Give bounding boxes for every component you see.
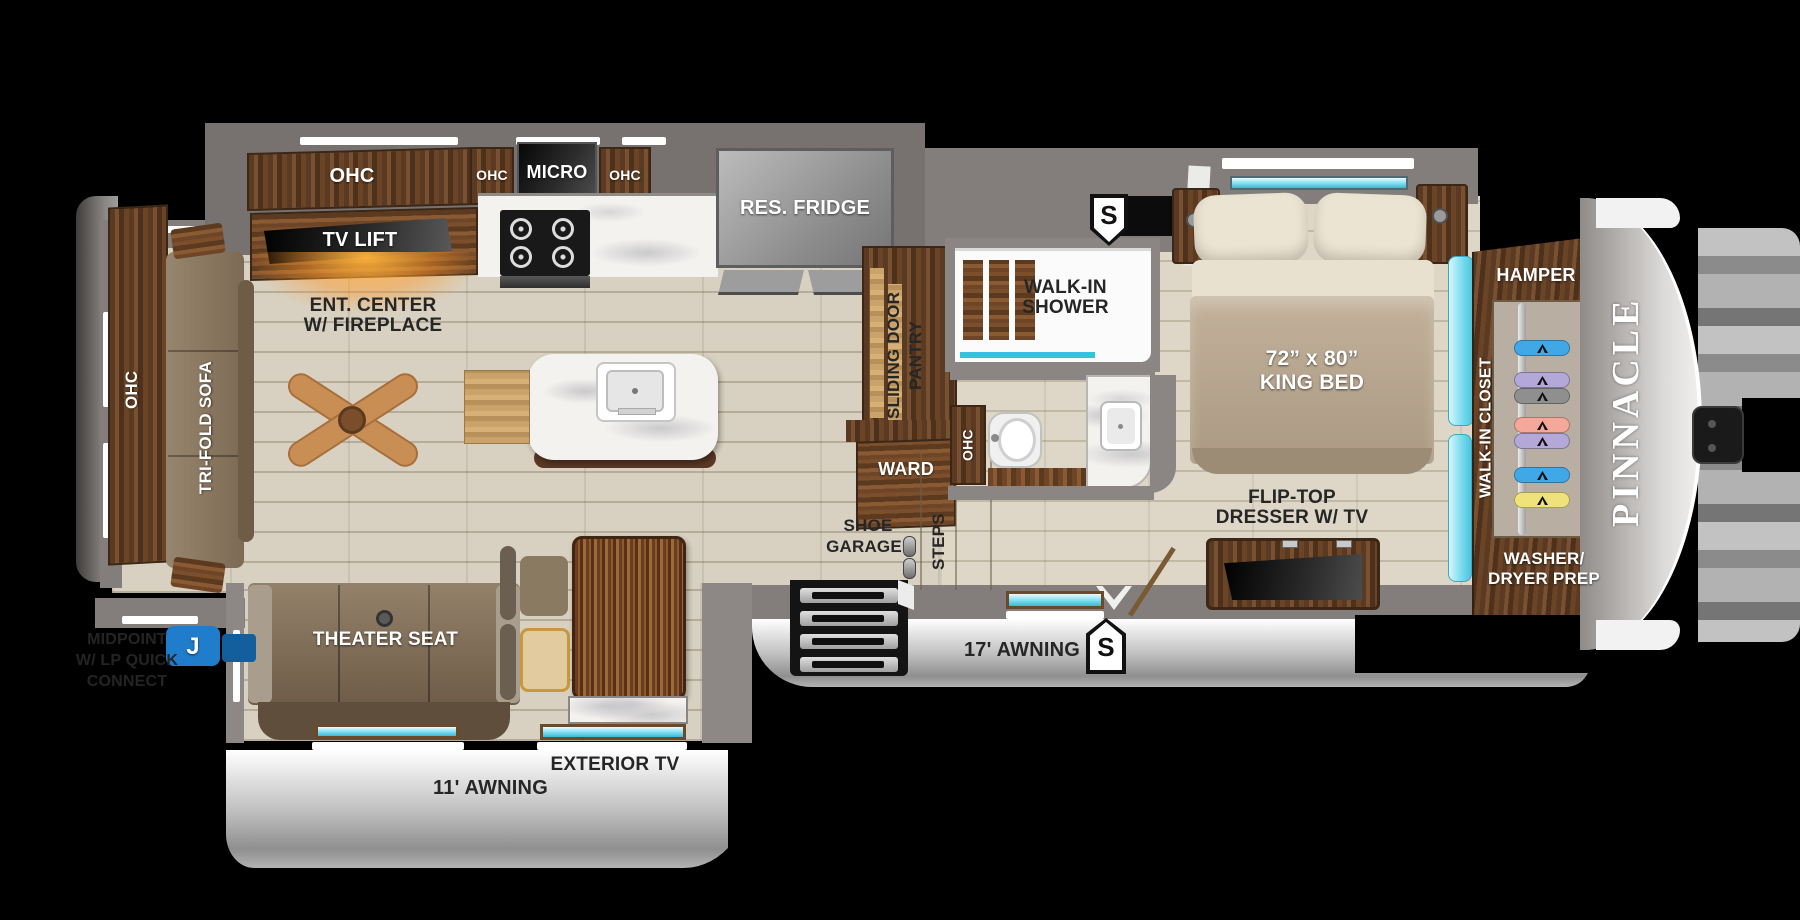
washer-label-1: WASHER/: [1494, 550, 1594, 568]
hitch-icon: [1692, 406, 1744, 464]
hanger-icon: [1514, 388, 1570, 404]
hanger-icon: [1514, 492, 1570, 508]
king-bed-label-1: 72” x 80”: [1242, 348, 1382, 370]
hanger-icon: [1514, 340, 1570, 356]
step-tread: [800, 611, 898, 626]
hanger-icon: [1514, 433, 1570, 449]
closet-mirror-door-1: [1448, 256, 1474, 426]
midpoint-label-2: W/ LP QUICK: [37, 653, 217, 670]
dinette-ledge: [568, 696, 688, 724]
step-tread: [800, 588, 898, 603]
slide-windowbar-1: [312, 742, 464, 750]
fridge-label: RES. FRIDGE: [716, 198, 894, 219]
ohc-main-label: OHC: [262, 166, 442, 187]
closet-mirror-door-2: [1448, 434, 1472, 582]
fridge-drawer-left: [718, 270, 804, 295]
dresser-label-2: DRESSER W/ TV: [1212, 508, 1372, 528]
pantry-label-2: PANTRY: [906, 298, 926, 413]
pillow-icon: [1193, 192, 1309, 266]
dresser-hinge-icon: [1336, 540, 1352, 548]
front-underbody: [1355, 615, 1590, 673]
bedroom-led-window: [1230, 176, 1408, 190]
burner-icon: [552, 218, 574, 240]
tv-lift-label: TV LIFT: [270, 230, 450, 251]
sofa-front-edge: [238, 280, 254, 542]
slide-windowbar-2: [537, 742, 687, 750]
king-bed-label-2: KING BED: [1242, 372, 1382, 394]
shower-bench-slat: [989, 260, 1009, 340]
slide-skirt-corner: [728, 750, 754, 860]
cupholder-icon: [376, 610, 393, 627]
shower-label-2: SHOWER: [1018, 298, 1113, 318]
hamper-label: HAMPER: [1488, 266, 1584, 285]
pantry-door-1: [870, 268, 884, 418]
exterior-tv-label: EXTERIOR TV: [545, 755, 685, 775]
theater-slide-wall-right: [702, 583, 752, 743]
entry-steps: [790, 580, 908, 676]
window-slide-3: [622, 137, 666, 145]
ward-label: WARD: [861, 460, 951, 479]
burner-icon: [510, 246, 532, 268]
ohc-right-label: OHC: [599, 168, 651, 183]
marker-s-bottom-label: S: [1086, 634, 1126, 661]
bath-wall-curve: [1150, 375, 1176, 493]
bath-faucet-icon: [1118, 424, 1123, 429]
washer-label-2: DRYER PREP: [1488, 570, 1600, 588]
front-cap-trim-top: [1596, 198, 1680, 228]
burner-icon: [510, 218, 532, 240]
rear-ohc-label: OHC: [120, 355, 144, 425]
toilet-flush: [991, 434, 999, 442]
midpoint-label-1: MIDPOINT: [52, 632, 202, 649]
step-tread: [800, 634, 898, 649]
hanger-icon: [1514, 467, 1570, 483]
walkin-closet-label: WALK-IN CLOSET: [1476, 348, 1498, 508]
pantry-label-1: SLIDING DOOR: [884, 288, 904, 423]
hitch-shadow: [1742, 398, 1800, 472]
window-bottom-left: [122, 616, 198, 624]
awning-17-label: 17' AWNING: [952, 640, 1092, 661]
pillow-icon: [1313, 192, 1427, 266]
dinette-chair-back: [500, 624, 516, 700]
island-butcher-block: [464, 370, 530, 444]
rv-floorplan: S S J MIDPOINT W/ LP QUICK CONNECT OHC O…: [0, 0, 1800, 920]
shower-threshold: [960, 352, 1095, 358]
pinnacle-badge: Pinnacle: [1602, 262, 1652, 562]
step-tread: [800, 657, 898, 672]
dinette-table: [572, 536, 686, 700]
toilet-shelf: [988, 468, 1092, 488]
island-sink-slot: [618, 408, 656, 415]
burner-icon: [552, 246, 574, 268]
shoe-garage-label-1: SHOE: [838, 517, 898, 535]
slide-window-theater: [315, 724, 459, 739]
slide-window-exterior-tv: [540, 724, 686, 740]
shoe-garage-label-2: GARAGE: [822, 538, 906, 556]
shower-bench-slat: [963, 260, 983, 340]
bath-ohc-label: OHC: [954, 418, 982, 473]
bottom-wall-windowbar: [1006, 611, 1104, 619]
awning-11-label: 11' AWNING: [418, 778, 563, 799]
marker-s-top-label: S: [1090, 202, 1128, 229]
front-cap-trim-bottom: [1596, 620, 1680, 650]
hanger-icon: [1514, 417, 1570, 433]
stove-front: [500, 276, 590, 288]
theater-seat-label: THEATER SEAT: [308, 630, 463, 650]
midpoint-label-3: CONNECT: [52, 674, 202, 691]
ceiling-fan-icon: [268, 340, 438, 500]
stove: [500, 210, 590, 276]
dinette-chair-back: [500, 546, 516, 620]
dinette-chair-seat: [520, 556, 568, 616]
micro-label: MICRO: [517, 163, 597, 182]
hanger-icon: [1514, 372, 1570, 388]
bottom-wall-window: [1006, 591, 1104, 609]
steps-label: STEPS: [928, 502, 950, 582]
nightstand-knob-icon: [1432, 208, 1448, 224]
dresser-label-1: FLIP-TOP: [1222, 488, 1362, 508]
bedroom-window: [1222, 158, 1414, 169]
island-faucet-icon: [632, 388, 638, 394]
dresser-hinge-icon: [1282, 540, 1298, 548]
bath-bottom-wall: [948, 486, 1154, 500]
toilet-bowl: [998, 418, 1036, 462]
ent-center-label-2: W/ FIREPLACE: [283, 316, 463, 336]
trifold-sofa-label: TRI-FOLD SOFA: [194, 348, 218, 508]
window-slide-1: [300, 137, 458, 145]
closet-hangers: [1494, 300, 1594, 538]
dinette-chair-seat: [520, 628, 570, 692]
ent-center-label-1: ENT. CENTER: [283, 296, 463, 316]
ohc-left-label: OHC: [470, 168, 514, 183]
marker-j-tab: [222, 634, 256, 662]
king-bed: [1190, 192, 1434, 476]
shower-label-1: WALK-IN: [1018, 278, 1113, 298]
bed-foot-drape: [1192, 448, 1432, 474]
shoe-icon: [903, 558, 916, 579]
